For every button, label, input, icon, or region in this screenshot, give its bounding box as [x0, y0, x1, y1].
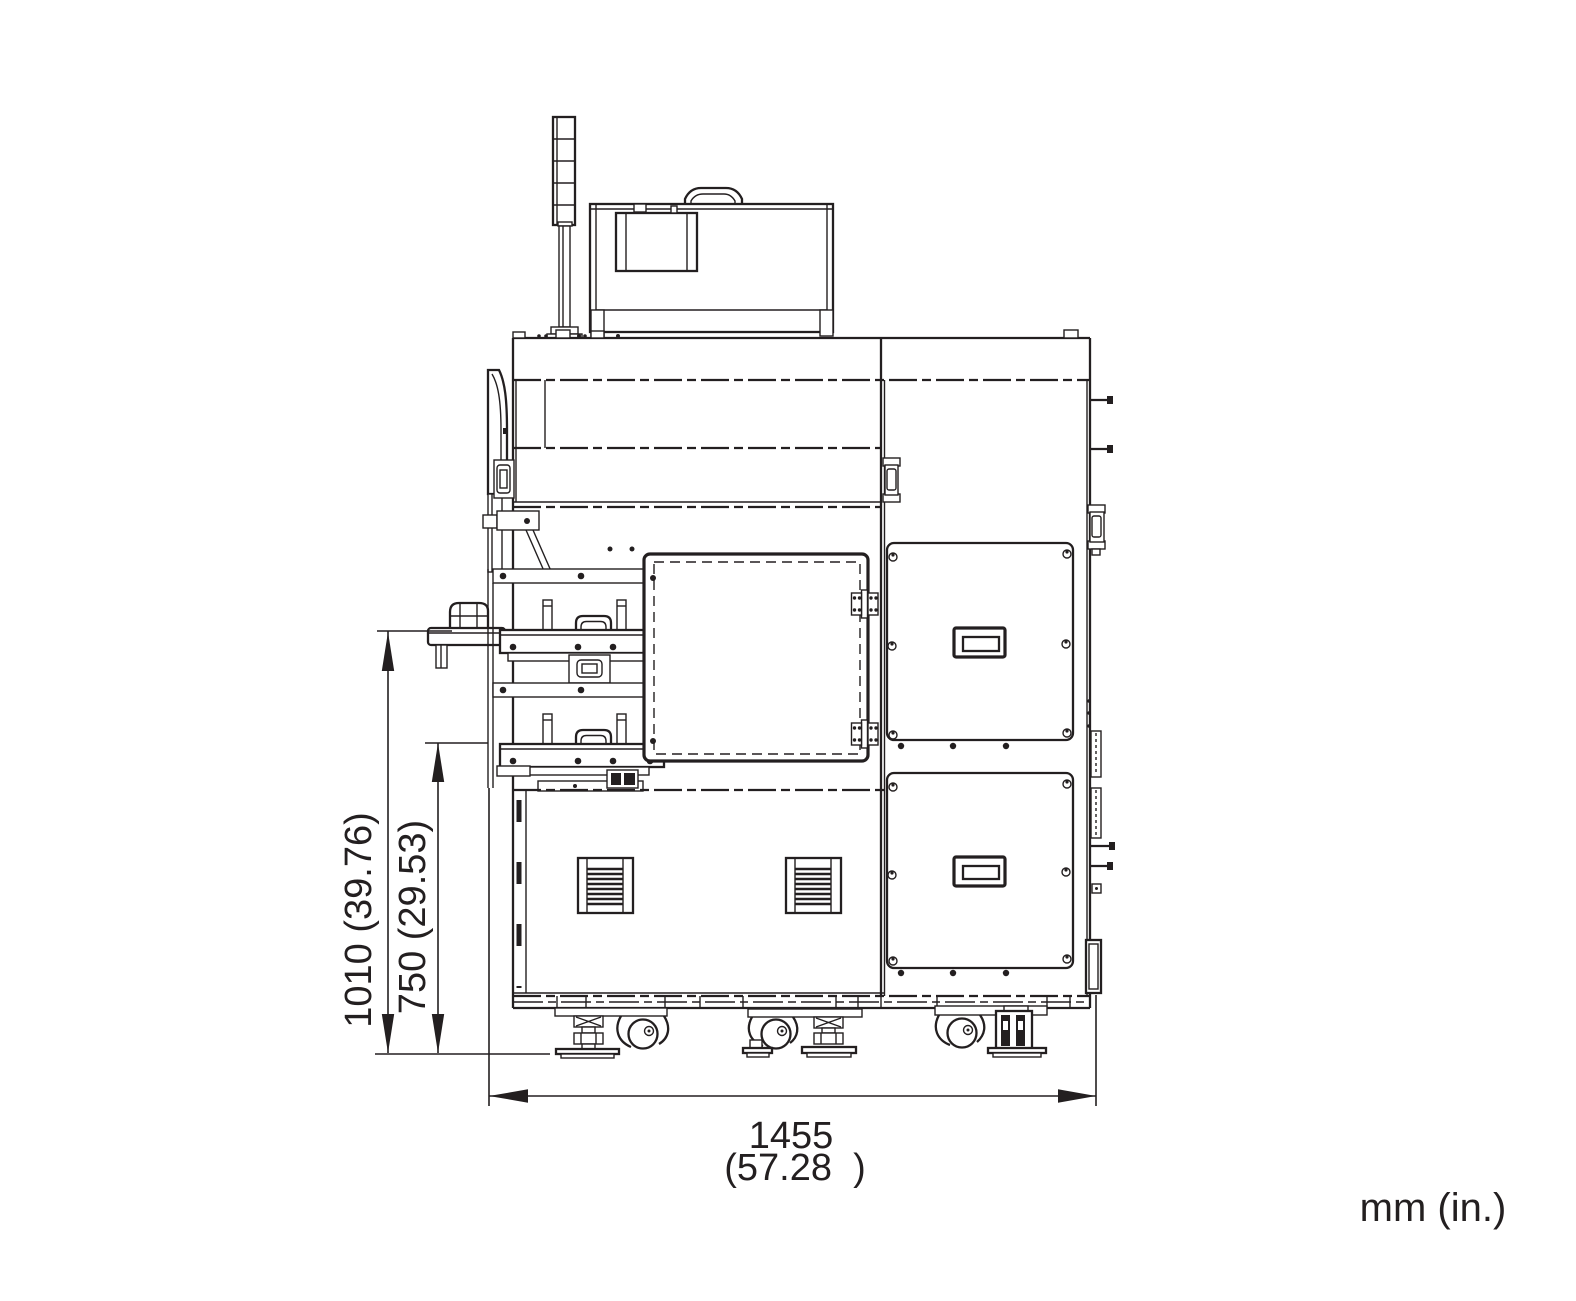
dim-tray-height-label: 750 (29.53) [392, 820, 434, 1014]
tray-bar [500, 630, 664, 653]
access-panel-upper [887, 543, 1073, 749]
control-display-unit [590, 188, 833, 336]
signal-tower [537, 117, 587, 338]
tray-unit-1 [493, 569, 665, 661]
dimension-height-750: 750 (29.53) [392, 743, 488, 1053]
front-door [644, 554, 878, 761]
side-latch-right [1088, 505, 1105, 555]
dim-overall-height-label: 1010 (39.76) [338, 812, 380, 1028]
dim-arrow-up [432, 743, 444, 782]
terminal-strip-2 [1091, 788, 1101, 838]
vent-grille-left [578, 858, 633, 913]
foot-caster-group-left [555, 1008, 668, 1058]
foot-caster-group-middle [743, 1009, 862, 1057]
dim-width-in: (57.28 ) [724, 1147, 866, 1189]
display-screen [616, 213, 697, 271]
door-hinge-bottom [852, 720, 879, 748]
leveling-foot-middle [802, 1017, 856, 1057]
units-label: mm (in.) [1360, 1186, 1507, 1230]
lower-cabinet [513, 790, 884, 993]
dim-arrow-up [382, 632, 394, 671]
access-panel-lower [887, 773, 1073, 976]
rear-bracket [1086, 940, 1101, 993]
tray-unit-2 [493, 683, 665, 775]
machine-front-view-drawing: 1010 (39.76) 750 (29.53) 1455 (57.28 ) m… [0, 0, 1576, 1301]
left-door-profile [488, 370, 514, 572]
left-door-latch [494, 460, 514, 498]
tray-bar [500, 744, 664, 767]
door-hinge-top [852, 590, 879, 618]
signal-tower-pole [559, 226, 570, 327]
dim-arrow-right [1058, 1089, 1096, 1102]
dim-arrow-down [382, 1014, 394, 1053]
dim-arrow-left [489, 1089, 528, 1102]
caster-left [617, 1016, 668, 1049]
dim-arrow-down [432, 1014, 444, 1053]
leveling-foot-left [556, 1016, 619, 1058]
tray-connector-block [569, 655, 610, 683]
side-latch-left [883, 458, 900, 502]
vent-grille-right [786, 858, 841, 913]
caster-right [936, 1015, 984, 1048]
technical-drawing-page: 1010 (39.76) 750 (29.53) 1455 (57.28 ) m… [0, 0, 1576, 1301]
foot-caster-group-right [935, 1006, 1047, 1057]
display-handle [685, 188, 742, 204]
